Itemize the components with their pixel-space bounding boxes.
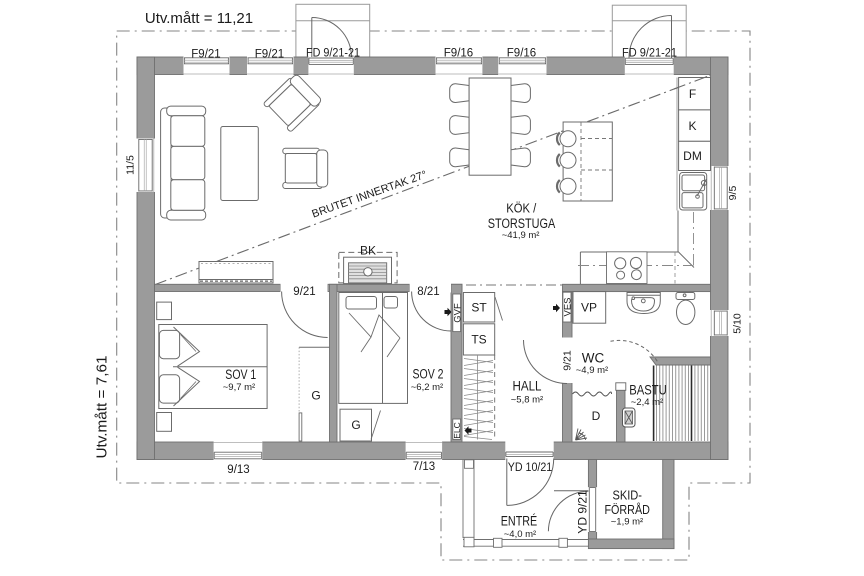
svg-text:Utv.mått = 7,61: Utv.mått = 7,61 xyxy=(93,356,110,459)
svg-text:F9/16: F9/16 xyxy=(507,48,536,60)
svg-text:5/10: 5/10 xyxy=(732,313,744,334)
svg-text:ENTRÉ: ENTRÉ xyxy=(501,514,538,529)
svg-text:~41,9 m²: ~41,9 m² xyxy=(502,230,540,241)
svg-text:G: G xyxy=(351,418,360,432)
svg-text:KÖK /: KÖK / xyxy=(506,202,536,216)
svg-text:G: G xyxy=(311,389,320,403)
svg-text:SOV 2: SOV 2 xyxy=(413,367,444,382)
svg-text:WC: WC xyxy=(582,351,605,366)
svg-text:9/21: 9/21 xyxy=(562,350,574,371)
svg-text:7/13: 7/13 xyxy=(413,461,435,473)
svg-text:8/21: 8/21 xyxy=(417,286,439,298)
svg-text:FÖRRÅD: FÖRRÅD xyxy=(604,502,650,517)
svg-text:ELC: ELC xyxy=(452,422,462,439)
svg-text:GVF: GVF xyxy=(452,303,463,323)
svg-text:YD 9/21: YD 9/21 xyxy=(576,490,590,534)
svg-text:~4,9 m²: ~4,9 m² xyxy=(576,365,608,376)
svg-text:Utv.mått = 11,21: Utv.mått = 11,21 xyxy=(145,10,253,27)
svg-text:F9/21: F9/21 xyxy=(255,49,284,61)
svg-text:DM: DM xyxy=(683,149,702,163)
svg-text:~2,4 m²: ~2,4 m² xyxy=(631,397,663,408)
svg-text:VP: VP xyxy=(581,301,597,315)
svg-text:~1,9 m²: ~1,9 m² xyxy=(611,517,643,528)
svg-text:~9,7 m²: ~9,7 m² xyxy=(223,382,255,393)
svg-text:~6,2 m²: ~6,2 m² xyxy=(411,382,443,393)
svg-text:11/5: 11/5 xyxy=(125,155,137,175)
svg-text:SOV 1: SOV 1 xyxy=(225,367,256,382)
svg-text:9/21: 9/21 xyxy=(293,286,315,298)
svg-text:9/5: 9/5 xyxy=(727,186,739,201)
svg-text:9/13: 9/13 xyxy=(227,464,249,476)
svg-text:TS: TS xyxy=(471,333,486,347)
svg-text:YD 10/21: YD 10/21 xyxy=(508,462,553,474)
svg-text:SKID-: SKID- xyxy=(612,489,642,503)
svg-text:F9/21: F9/21 xyxy=(191,49,220,61)
svg-text:FD 9/21-21: FD 9/21-21 xyxy=(306,48,360,60)
svg-text:FD 9/21-21: FD 9/21-21 xyxy=(622,48,677,60)
svg-text:ST: ST xyxy=(471,301,487,315)
svg-text:K: K xyxy=(688,119,696,133)
svg-text:~5,8 m²: ~5,8 m² xyxy=(511,395,543,406)
svg-text:~4,0 m²: ~4,0 m² xyxy=(504,529,536,540)
svg-text:VES: VES xyxy=(563,297,574,316)
svg-text:F9/16: F9/16 xyxy=(444,48,473,60)
svg-text:BASTU: BASTU xyxy=(629,383,667,398)
svg-text:BK: BK xyxy=(360,244,376,258)
svg-text:HALL: HALL xyxy=(513,379,542,394)
svg-text:F: F xyxy=(689,87,696,101)
svg-text:D: D xyxy=(592,409,601,423)
svg-text:STORSTUGA: STORSTUGA xyxy=(488,216,556,231)
